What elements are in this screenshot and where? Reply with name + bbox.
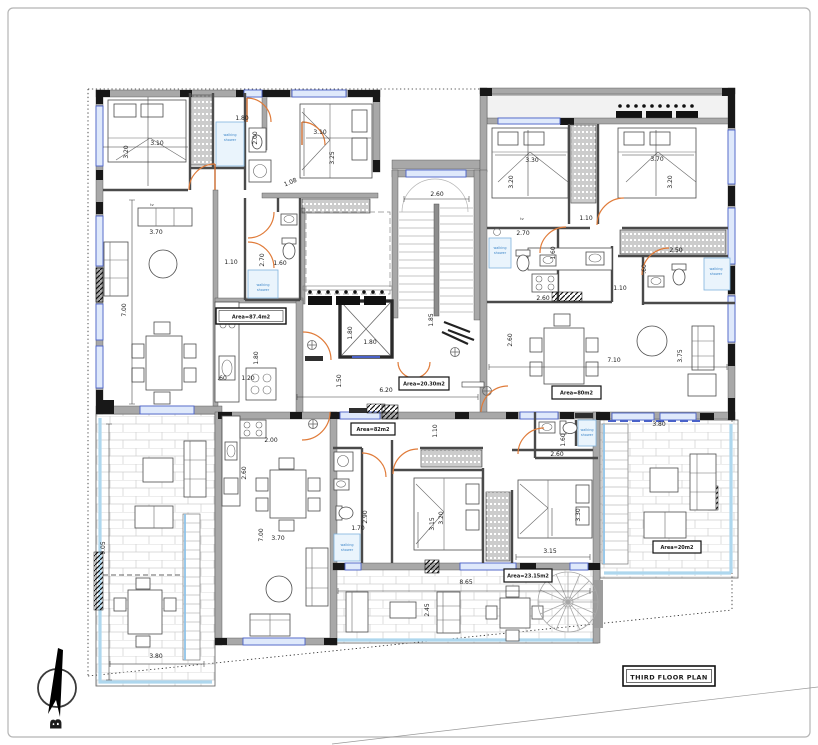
dim-label: 3.25 [329, 151, 336, 165]
dim-label: 7.00 [258, 528, 265, 542]
dim-label: 7.10 [607, 357, 621, 364]
area-label-terrace-bottom: Area=23.15m2 [504, 569, 552, 582]
dim-label: 2.70 [259, 253, 266, 267]
bathroom-top-left-shower [216, 122, 271, 182]
kitchen-bottom [222, 416, 266, 506]
area-text: Area=20m2 [661, 545, 694, 551]
dim-label: 9.05 [100, 541, 107, 555]
dim-label: 3.80 [149, 653, 163, 660]
dim-label: 2.60 [430, 191, 444, 198]
area-text: Area=82m2 [357, 427, 390, 433]
bed [300, 104, 372, 178]
area-text: Area=80m2 [560, 391, 593, 397]
stair-stringer [434, 204, 439, 316]
dim-label: 2.60 [507, 333, 514, 347]
dim-label: 3.30 [525, 157, 539, 164]
walking-shower-label: walking [710, 267, 723, 271]
dim-label: 3.15 [429, 517, 436, 531]
dim-label: 2.00 [252, 131, 259, 145]
dim-label: 1.80 [253, 351, 260, 365]
third-floor-plan-drawing: 3.10 3.20 1.80 2.00 3.10 3.25 1.08 3.70 … [0, 0, 818, 745]
dim-label: 3.70 [271, 535, 285, 542]
bed [414, 478, 482, 550]
dim-label: 1.60 [550, 246, 557, 260]
dim-label: 3.75 [677, 349, 684, 363]
area-label-unit-bottom: Area=82m2 [351, 423, 395, 435]
dim-label: 1.10 [224, 259, 238, 266]
area-text: Area=23.15m2 [507, 574, 549, 580]
dim-label: 1.60 [560, 433, 567, 447]
dim-label: 3.10 [150, 140, 164, 147]
dim-label: 3.30 [575, 508, 582, 522]
dim-label: 7.00 [121, 303, 128, 317]
walking-shower-label: shower [341, 548, 354, 552]
dim-label: 8.65 [459, 579, 473, 586]
dim-label: 3.70 [149, 229, 163, 236]
walking-shower-label: shower [224, 138, 237, 142]
walking-shower-label: walking [494, 246, 507, 250]
bed [618, 128, 696, 198]
pergola-strip [183, 514, 200, 660]
living-room-top-right [530, 314, 716, 398]
dim-label: 3.20 [438, 511, 445, 525]
floor-plan-canvas: 3.10 3.20 1.80 2.00 3.10 3.25 1.08 3.70 … [0, 0, 818, 745]
area-text: Area=20.30m2 [403, 382, 445, 388]
dim-label: 2.60 [550, 451, 564, 458]
walking-shower-label: walking [341, 543, 354, 547]
area-text: Area=87.4m2 [232, 315, 271, 321]
terrace-bottom-center [333, 565, 598, 643]
walking-shower-label: shower [710, 272, 723, 276]
area-label-terrace-right: Area=20m2 [653, 541, 701, 553]
area-label-core: Area=20.30m2 [399, 377, 449, 390]
stair-core [399, 179, 474, 344]
core-loggia [303, 212, 392, 305]
dim-label: 2.00 [264, 437, 278, 444]
bed [108, 100, 186, 162]
dim-label: 2.45 [424, 603, 431, 617]
dim-label: 1.50 [336, 374, 343, 388]
tv-label: tv [150, 203, 154, 207]
compass-letter: B [49, 719, 65, 730]
stored-equipment [442, 322, 474, 344]
tv-label: tv [520, 217, 524, 221]
balcony-top-right [487, 95, 731, 121]
pergola-strip-right [602, 424, 628, 564]
dim-label: 1.20 [241, 375, 255, 382]
dim-label: .60 [641, 264, 648, 274]
dim-label: 1.80 [347, 326, 354, 340]
dim-label: 3.10 [313, 129, 327, 136]
dim-label: 2.90 [362, 510, 369, 524]
area-label-unit-top-left: Area=87.4m2 [216, 308, 286, 324]
dim-label: 1.08 [283, 177, 298, 189]
dim-label: 2.60 [241, 466, 248, 480]
dim-label: 1.70 [351, 525, 365, 532]
drawing-title-box: THIRD FLOOR PLAN [623, 666, 715, 686]
dim-label: 3.15 [543, 548, 557, 555]
dim-label: 2.50 [669, 247, 683, 254]
dim-label: 1.80 [363, 339, 377, 346]
dim-label: 1.10 [579, 215, 593, 222]
dim-label: 2.70 [516, 230, 530, 237]
drawing-title: THIRD FLOOR PLAN [630, 674, 707, 682]
dim-label: 1.10 [432, 424, 439, 438]
terrace-right [600, 420, 738, 578]
dim-label: 3.70 [650, 156, 664, 163]
living-room-top-left [104, 208, 196, 404]
dim-label: 3.80 [652, 421, 666, 428]
walking-shower-label: walking [581, 428, 594, 432]
living-room-bottom [250, 458, 328, 636]
bathroom-top-left-2 [248, 214, 297, 298]
dim-label: 1.85 [428, 313, 435, 327]
walking-shower-label: shower [494, 251, 507, 255]
dim-label: .60 [217, 375, 227, 382]
wall-pier-hatched [94, 552, 103, 610]
dim-label: 3.20 [508, 175, 515, 189]
dim-label: 6.20 [379, 387, 393, 394]
north-compass: B [38, 648, 76, 729]
dim-label: 2.60 [536, 295, 550, 302]
walking-shower-label: walking [257, 283, 270, 287]
dim-label: 1.10 [613, 285, 627, 292]
walking-shower-label: walking [224, 133, 237, 137]
dim-label: 3.20 [667, 175, 674, 189]
walking-shower-label: shower [581, 433, 594, 437]
walking-shower-label: shower [257, 288, 270, 292]
dim-label: 1.80 [235, 115, 249, 122]
area-label-unit-top-right: Area=80m2 [552, 386, 601, 399]
dim-label: 1.60 [273, 260, 287, 267]
dim-label: 3.20 [123, 145, 130, 159]
